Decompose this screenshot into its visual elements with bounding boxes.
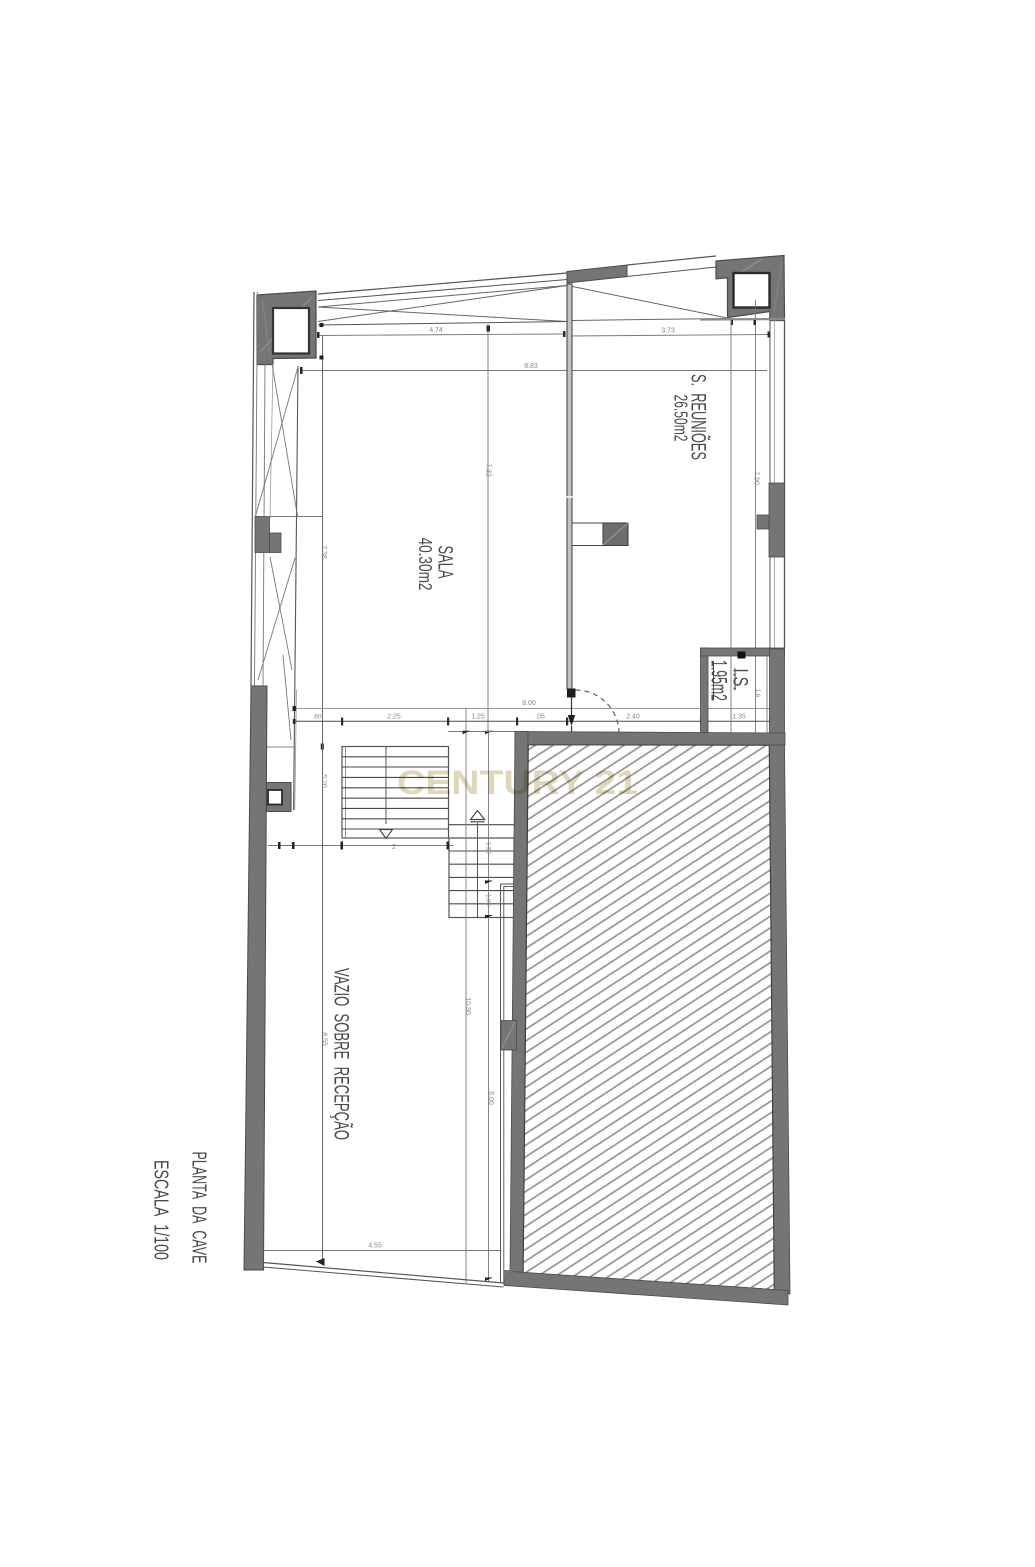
svg-text:.80: .80 [312, 714, 321, 721]
svg-text:ESCALA 1/100: ESCALA 1/100 [150, 1160, 172, 1260]
svg-text:3.73: 3.73 [661, 328, 675, 335]
svg-text:1.95m2: 1.95m2 [707, 660, 732, 701]
svg-text:VAZIO SOBRE RECEPÇÃO: VAZIO SOBRE RECEPÇÃO [330, 968, 354, 1140]
svg-text:5.20: 5.20 [320, 774, 327, 788]
svg-text:10.30: 10.30 [464, 997, 471, 1015]
svg-text:40.30m2: 40.30m2 [415, 538, 435, 591]
svg-text:1.35: 1.35 [732, 714, 746, 721]
svg-text:1.50: 1.50 [485, 842, 491, 854]
svg-text:1.25: 1.25 [471, 714, 485, 721]
svg-text:2.40: 2.40 [626, 714, 640, 721]
svg-text:8.00: 8.00 [522, 700, 536, 707]
svg-text:SALA: SALA [434, 546, 457, 579]
svg-text:6.00: 6.00 [487, 1091, 494, 1105]
svg-text:7.90: 7.90 [753, 471, 760, 485]
svg-text:8.83: 8.83 [524, 363, 538, 370]
svg-text:1.6: 1.6 [754, 689, 760, 698]
svg-text:PLANTA DA CAVE: PLANTA DA CAVE [188, 1152, 210, 1264]
svg-text:4.55: 4.55 [368, 1243, 382, 1250]
svg-text:8.55: 8.55 [321, 1032, 328, 1046]
svg-text:4.74: 4.74 [429, 327, 443, 334]
svg-text:.05: .05 [535, 714, 545, 721]
svg-text:2.25: 2.25 [387, 714, 401, 721]
svg-text:7.32: 7.32 [485, 463, 492, 477]
svg-text:CENTURY 21: CENTURY 21 [397, 764, 638, 802]
svg-text:7.38: 7.38 [320, 545, 327, 559]
svg-text:1.80: 1.80 [485, 894, 491, 906]
svg-text:26.50m2: 26.50m2 [671, 395, 691, 442]
